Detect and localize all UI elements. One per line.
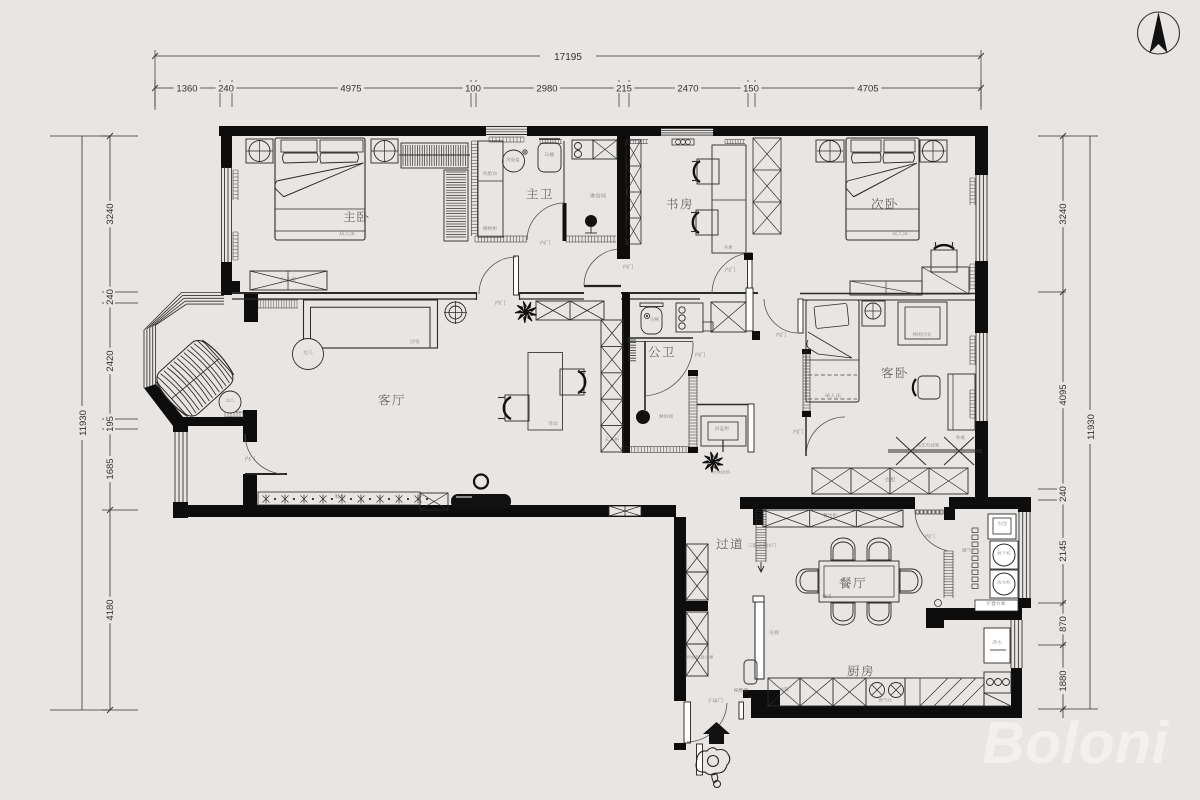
svg-text:100: 100	[465, 84, 481, 95]
svg-text:215: 215	[616, 84, 632, 95]
svg-text:4095: 4095	[1058, 384, 1069, 405]
svg-text:2145: 2145	[1058, 540, 1069, 561]
svg-text:11930: 11930	[1086, 414, 1097, 440]
svg-text:2470: 2470	[677, 84, 698, 95]
svg-text:4180: 4180	[105, 599, 116, 620]
svg-text:195: 195	[105, 416, 116, 432]
svg-text:2980: 2980	[536, 84, 557, 95]
svg-text:240: 240	[105, 289, 116, 305]
svg-text:240: 240	[1058, 486, 1069, 502]
svg-text:2420: 2420	[105, 350, 116, 371]
svg-text:3240: 3240	[1058, 203, 1069, 224]
svg-text:11930: 11930	[78, 410, 89, 436]
svg-text:4705: 4705	[857, 84, 878, 95]
svg-text:17195: 17195	[554, 52, 582, 63]
svg-text:4975: 4975	[340, 84, 361, 95]
svg-text:1880: 1880	[1058, 670, 1069, 691]
svg-text:1360: 1360	[176, 84, 197, 95]
svg-text:Boloni: Boloni	[982, 710, 1170, 776]
svg-text:150: 150	[743, 84, 759, 95]
svg-text:1685: 1685	[105, 458, 116, 479]
svg-text:3240: 3240	[105, 203, 116, 224]
svg-text:870: 870	[1058, 616, 1069, 632]
svg-text:240: 240	[218, 84, 234, 95]
